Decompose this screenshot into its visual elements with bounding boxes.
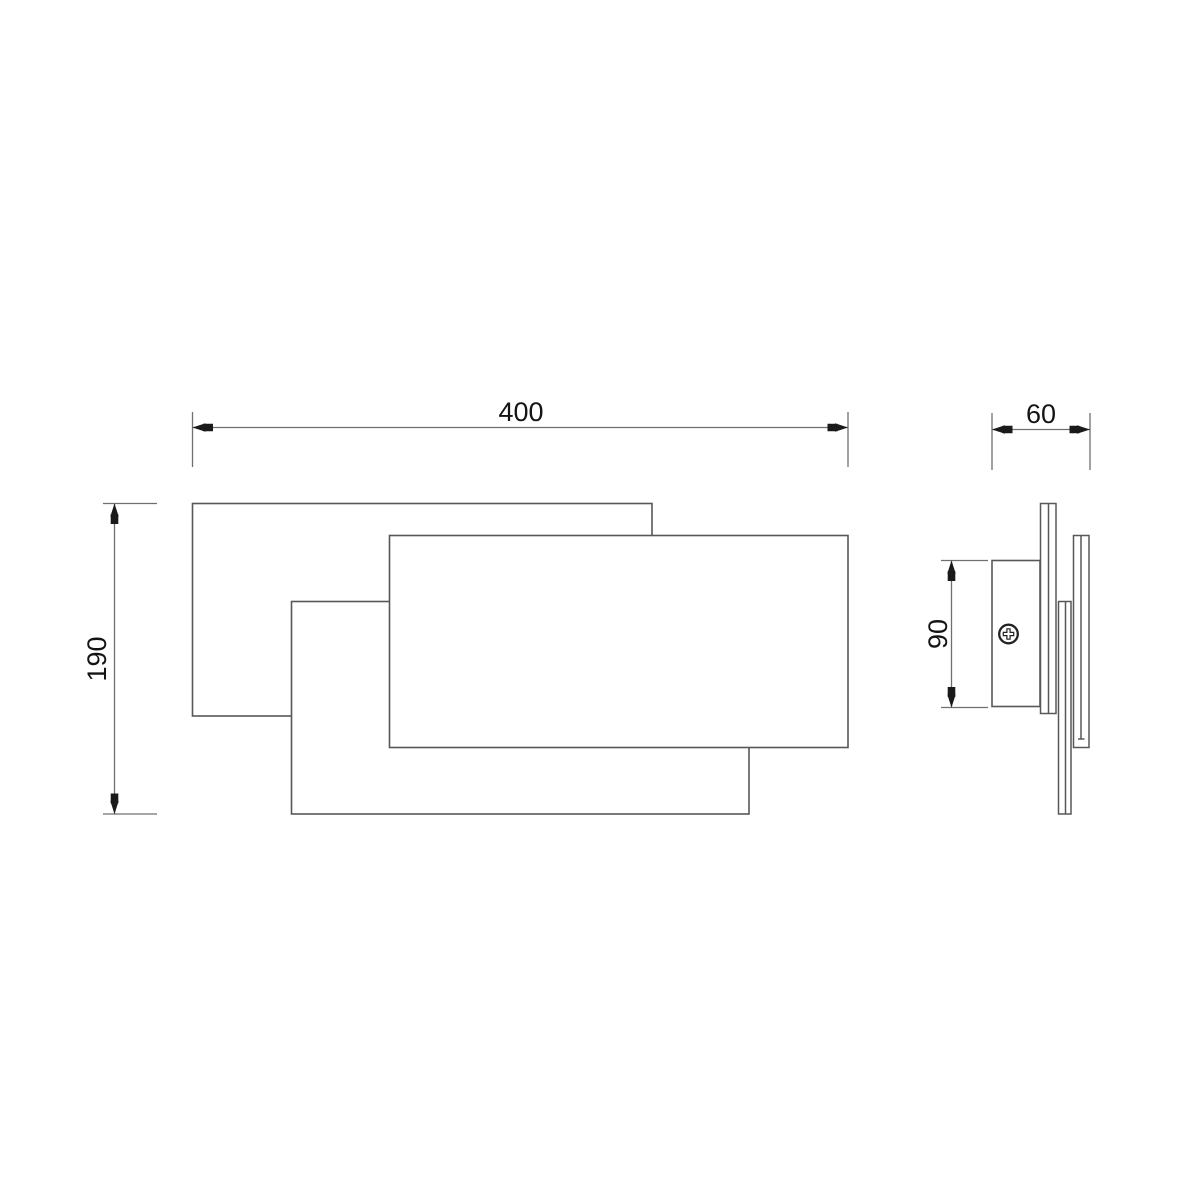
depth-dimension: 60 (992, 399, 1090, 470)
front-panel (390, 536, 849, 748)
dimension-label-bracket-height: 90 (923, 619, 953, 649)
width-dimension: 400 (193, 397, 849, 467)
height-dimension: 190 (82, 504, 157, 815)
arrowhead-left (992, 425, 1013, 433)
dimension-label-width: 400 (498, 397, 543, 427)
arrowhead-right (1070, 425, 1091, 433)
dimension-label-height: 190 (82, 636, 112, 681)
wall-lamp-dimension-drawing: 400 190 (0, 0, 1200, 1200)
front-view (193, 504, 849, 815)
dimension-label-depth: 60 (1026, 399, 1056, 429)
technical-drawing-canvas: 400 190 (0, 0, 1200, 1200)
arrowhead-top (110, 504, 118, 525)
arrowhead-right (828, 423, 849, 431)
arrowhead-bottom (947, 687, 955, 708)
screw-head (999, 625, 1018, 644)
arrowhead-top (947, 561, 955, 582)
phillips-screw-icon (999, 625, 1018, 644)
bracket-height-dimension: 90 (923, 561, 988, 708)
side-view (992, 504, 1089, 815)
arrowhead-left (193, 423, 214, 431)
arrowhead-bottom (110, 794, 118, 815)
